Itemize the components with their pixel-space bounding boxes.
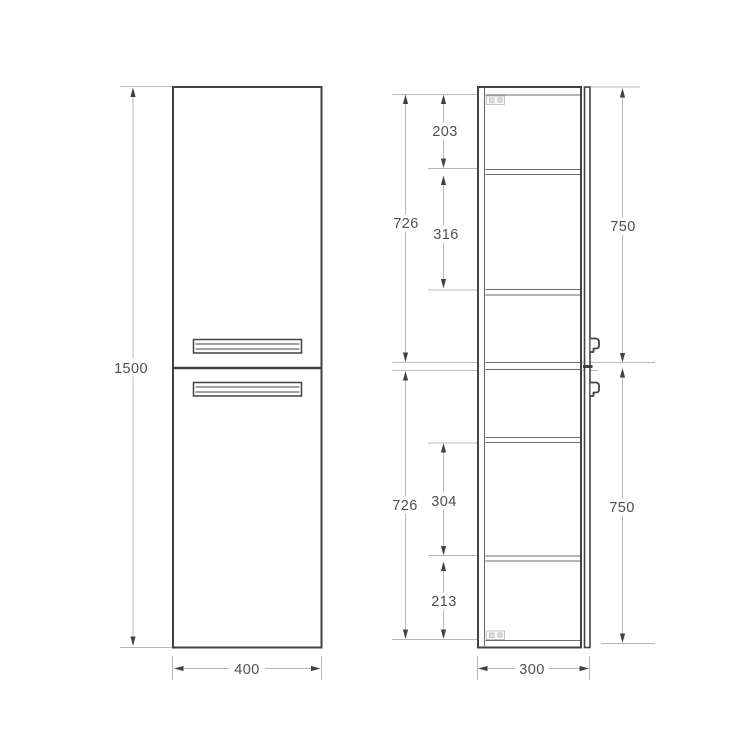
arrow-up-icon xyxy=(441,443,446,453)
dim-label-door-upper: 750 xyxy=(610,219,635,235)
hinge-screw-icon xyxy=(498,633,502,637)
dim-front-width: 400 xyxy=(173,656,322,680)
hinge-screw-icon xyxy=(490,633,495,638)
arrow-down-icon xyxy=(441,279,446,289)
arrow-right-icon xyxy=(580,666,590,671)
dim-interior-lower: 726 xyxy=(388,371,422,639)
arrow-up-icon xyxy=(403,95,408,105)
hinge-screw-icon xyxy=(498,98,502,102)
arrow-left-icon xyxy=(478,666,488,671)
side-handle-upper xyxy=(591,339,600,353)
technical-drawing-canvas: 1500 400 xyxy=(0,0,750,750)
arrow-left-icon xyxy=(174,666,184,671)
arrow-up-icon xyxy=(441,95,446,105)
arrow-down-icon xyxy=(403,630,408,640)
dim-label-gap-lower-mid: 304 xyxy=(431,494,456,510)
arrow-up-icon xyxy=(620,88,625,98)
front-view: 1500 400 xyxy=(110,87,322,681)
handle-outline xyxy=(194,340,302,354)
arrow-up-icon xyxy=(403,371,408,381)
dim-label-door-lower: 750 xyxy=(609,500,634,516)
dim-side-depth: 300 xyxy=(478,656,590,680)
hinge-screw-icon xyxy=(490,98,495,103)
dim-label-gap-top: 203 xyxy=(432,124,457,140)
arrow-down-icon xyxy=(620,634,625,644)
dim-label-side-depth: 300 xyxy=(519,662,544,678)
side-view: 726 203 316 750 xyxy=(388,87,655,680)
arrow-down-icon xyxy=(403,353,408,363)
arrow-right-icon xyxy=(311,666,321,671)
front-handle-lower xyxy=(194,383,302,397)
hinge-plate-top xyxy=(487,96,505,105)
dim-label-front-width: 400 xyxy=(234,662,259,678)
dim-gap-upper-mid: 316 xyxy=(429,176,463,289)
handle-outline xyxy=(194,383,302,397)
dim-label-front-height: 1500 xyxy=(114,361,148,377)
dim-gap-lower-mid: 304 xyxy=(427,443,461,556)
arrow-down-icon xyxy=(620,353,625,363)
arrow-down-icon xyxy=(130,637,135,647)
cabinet-drawing: 1500 400 xyxy=(0,0,750,750)
side-carcass-outline xyxy=(478,87,581,648)
dim-label-interior-upper: 726 xyxy=(393,216,418,232)
side-handle-lower xyxy=(591,383,600,397)
dim-interior-upper: 726 xyxy=(389,95,423,363)
arrow-up-icon xyxy=(620,368,625,378)
dim-label-gap-upper-mid: 316 xyxy=(433,227,458,243)
arrow-up-icon xyxy=(441,176,446,186)
arrow-down-icon xyxy=(441,159,446,169)
hinge-plate-bottom xyxy=(487,631,505,640)
dim-gap-top: 203 xyxy=(428,95,462,169)
arrow-down-icon xyxy=(441,546,446,556)
front-handle-upper xyxy=(194,340,302,354)
dim-front-height: 1500 xyxy=(110,88,153,647)
dim-gap-bottom: 213 xyxy=(427,562,461,640)
dim-door-lower: 750 xyxy=(605,368,639,643)
arrow-up-icon xyxy=(441,562,446,572)
arrow-up-icon xyxy=(130,88,135,98)
dim-door-upper: 750 xyxy=(606,88,640,363)
arrow-down-icon xyxy=(441,630,446,640)
dim-label-interior-lower: 726 xyxy=(392,498,417,514)
dim-label-gap-bottom: 213 xyxy=(431,594,456,610)
